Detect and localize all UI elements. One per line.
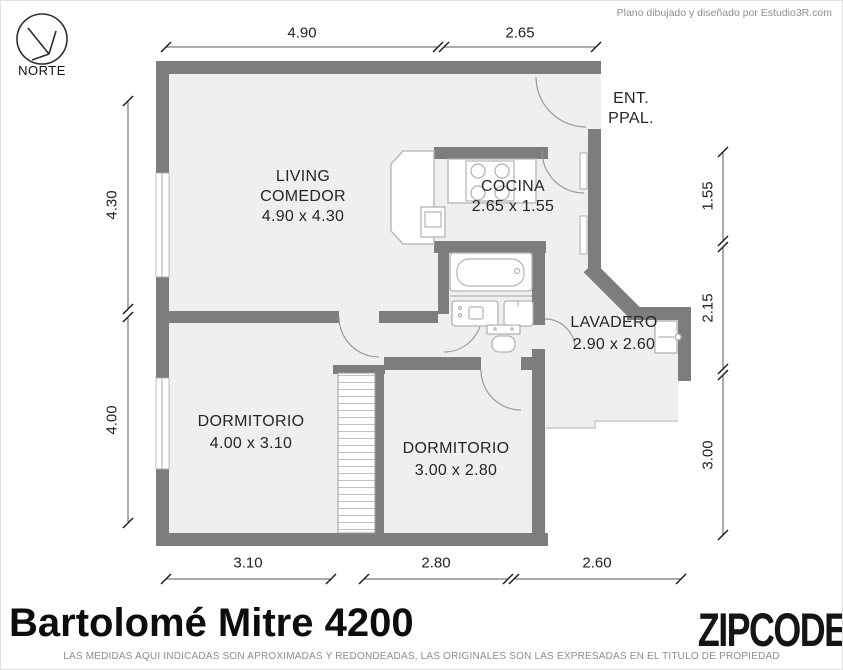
room-label-living-2: COMEDOR	[260, 188, 346, 206]
room-size-cocina: 2.65 x 1.55	[472, 198, 554, 216]
bathroom-sink-icon	[452, 301, 498, 326]
room-size-living: 4.90 x 4.30	[262, 208, 344, 226]
room-label-dormitorio2: DORMITORIO	[403, 440, 510, 458]
room-size-lavadero: 2.90 x 2.60	[573, 336, 655, 354]
dim-bottom-2: 2.80	[421, 555, 450, 572]
entrance-label-1: ENT.	[613, 90, 649, 108]
zipcode-logo: ZIPCODE	[697, 602, 843, 657]
disclaimer-text: LAS MEDIDAS AQUI INDICADAS SON APROXIMAD…	[1, 651, 842, 662]
room-size-dormitorio1: 4.00 x 3.10	[210, 435, 292, 453]
room-label-living-1: LIVING	[276, 168, 330, 186]
dim-left-2: 4.00	[104, 405, 121, 434]
entrance-label-2: PPAL.	[608, 110, 654, 128]
page-title: Bartolomé Mitre 4200	[9, 601, 414, 646]
closet-icon	[338, 373, 375, 533]
dim-bottom-3: 2.60	[582, 555, 611, 572]
dim-top-2: 2.65	[505, 25, 534, 42]
window-dormitorio1	[156, 378, 169, 469]
dim-right-2: 2.15	[700, 293, 717, 322]
dim-right-3: 3.00	[700, 440, 717, 469]
dim-left-1: 4.30	[104, 190, 121, 219]
dim-top-1: 4.90	[287, 25, 316, 42]
dim-bottom-1: 3.10	[233, 555, 262, 572]
window-living	[156, 173, 169, 277]
bathtub-icon	[450, 253, 532, 296]
floor-plan-page: NORTE Plano dibujado y diseñado por Estu…	[0, 0, 843, 670]
room-label-cocina: COCINA	[481, 178, 545, 196]
laundry-tub-icon	[655, 321, 681, 353]
bidet-icon	[504, 301, 533, 326]
dim-right-1: 1.55	[700, 181, 717, 210]
room-size-dormitorio2: 3.00 x 2.80	[415, 462, 497, 480]
room-label-lavadero: LAVADERO	[570, 314, 657, 332]
room-label-dormitorio1: DORMITORIO	[198, 413, 305, 431]
